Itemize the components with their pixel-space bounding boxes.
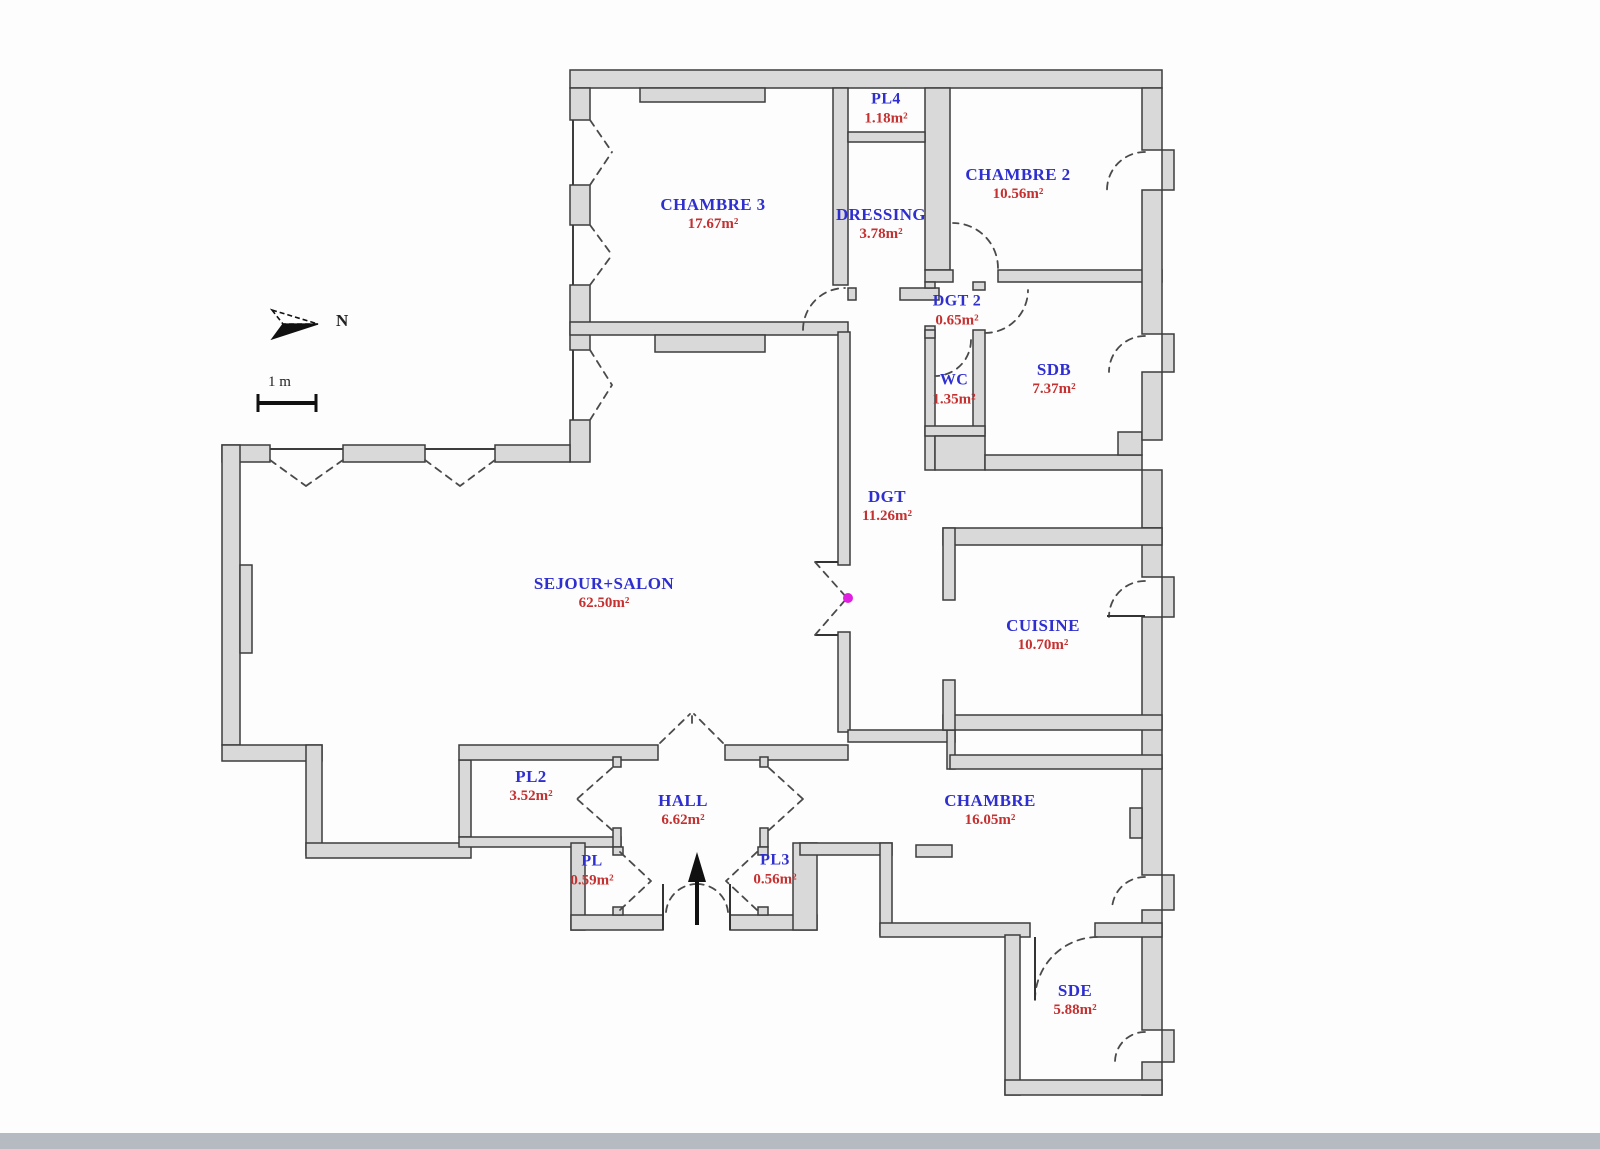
room-label-chambre2: CHAMBRE 2 10.56m² — [965, 164, 1070, 204]
room-label-hall: HALL 6.62m² — [658, 790, 708, 830]
room-name: PL3 — [753, 851, 796, 871]
room-area: 0.65m² — [933, 312, 981, 331]
entrance-arrow-icon — [688, 852, 706, 925]
room-area: 0.59m² — [570, 872, 613, 891]
room-label-pl: PL 0.59m² — [570, 852, 613, 891]
room-area: 6.62m² — [658, 811, 708, 830]
room-area: 11.26m² — [862, 507, 912, 526]
room-area: 10.70m² — [1006, 636, 1080, 655]
room-name: CHAMBRE 2 — [965, 164, 1070, 185]
room-name: CHAMBRE 3 — [660, 194, 765, 215]
north-label: N — [336, 311, 348, 331]
room-label-dgt: DGT 11.26m² — [862, 486, 912, 526]
room-label-sdb: SDB 7.37m² — [1032, 359, 1075, 399]
room-name: CUISINE — [1006, 615, 1080, 636]
windows — [270, 120, 1145, 1062]
room-label-chambre: CHAMBRE 16.05m² — [944, 790, 1036, 830]
room-name: SEJOUR+SALON — [534, 573, 674, 594]
scale-bar — [258, 394, 316, 412]
room-area: 3.78m² — [836, 225, 926, 244]
room-label-sde: SDE 5.88m² — [1053, 980, 1096, 1020]
room-name: DRESSING — [836, 204, 926, 225]
room-label-sejour-salon: SEJOUR+SALON 62.50m² — [534, 573, 674, 613]
door-sensor-dot — [843, 593, 853, 603]
room-label-wc: WC 1.35m² — [932, 371, 975, 410]
room-area: 17.67m² — [660, 215, 765, 234]
room-name: DGT 2 — [933, 292, 981, 312]
room-name: SDE — [1053, 980, 1096, 1001]
room-label-dressing: DRESSING 3.78m² — [836, 204, 926, 244]
room-area: 3.52m² — [509, 787, 552, 806]
room-label-pl4: PL4 1.18m² — [864, 90, 907, 129]
floor-plan-drawing — [0, 0, 1600, 1149]
bottom-window-bar — [0, 1133, 1600, 1149]
room-name: WC — [932, 371, 975, 391]
room-name: PL4 — [864, 90, 907, 110]
room-area: 1.35m² — [932, 391, 975, 410]
room-area: 62.50m² — [534, 594, 674, 613]
room-area: 5.88m² — [1053, 1001, 1096, 1020]
room-area: 10.56m² — [965, 185, 1070, 204]
room-label-cuisine: CUISINE 10.70m² — [1006, 615, 1080, 655]
floor-plan-page: PL4 1.18m² CHAMBRE 2 10.56m² CHAMBRE 3 1… — [0, 0, 1600, 1149]
room-name: SDB — [1032, 359, 1075, 380]
room-label-pl2: PL2 3.52m² — [509, 766, 552, 806]
room-name: PL2 — [509, 766, 552, 787]
room-label-dgt2: DGT 2 0.65m² — [933, 292, 981, 331]
room-label-chambre3: CHAMBRE 3 17.67m² — [660, 194, 765, 234]
room-name: DGT — [862, 486, 912, 507]
room-name: CHAMBRE — [944, 790, 1036, 811]
room-label-pl3: PL3 0.56m² — [753, 851, 796, 890]
room-name: PL — [570, 852, 613, 872]
north-arrow-icon — [272, 310, 318, 339]
room-area: 0.56m² — [753, 871, 796, 890]
room-name: HALL — [658, 790, 708, 811]
room-area: 16.05m² — [944, 811, 1036, 830]
room-area: 7.37m² — [1032, 380, 1075, 399]
room-area: 1.18m² — [864, 110, 907, 129]
scale-bar-label: 1 m — [268, 374, 291, 391]
